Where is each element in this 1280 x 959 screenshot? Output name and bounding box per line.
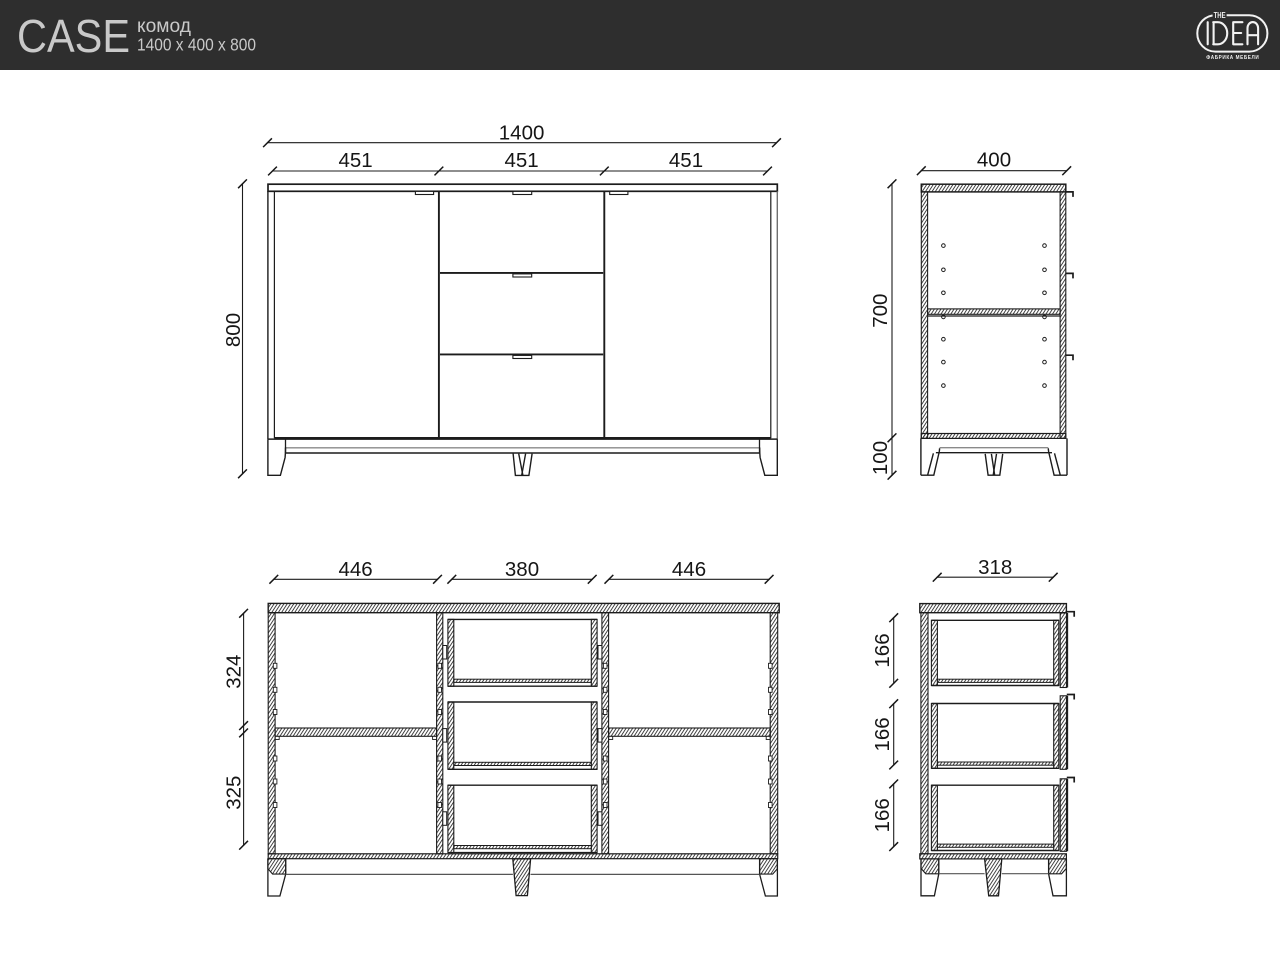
svg-text:324: 324 [223,655,246,689]
svg-text:100: 100 [869,441,892,475]
svg-text:451: 451 [504,149,538,172]
svg-text:700: 700 [869,294,892,328]
svg-text:325: 325 [223,776,246,810]
svg-text:CASE: CASE [17,10,130,62]
svg-text:446: 446 [338,558,372,581]
svg-text:451: 451 [338,149,372,172]
svg-text:166: 166 [871,798,894,832]
svg-text:ФАБРИКА МЕБЕЛИ: ФАБРИКА МЕБЕЛИ [1206,55,1259,61]
svg-text:446: 446 [672,558,706,581]
svg-text:451: 451 [669,149,703,172]
svg-text:1400 x 400 x 800: 1400 x 400 x 800 [137,35,256,55]
svg-text:800: 800 [222,313,245,347]
svg-text:318: 318 [978,556,1012,579]
svg-text:166: 166 [871,633,894,667]
svg-text:THE: THE [1214,10,1226,20]
svg-text:166: 166 [871,717,894,751]
svg-text:1400: 1400 [499,121,545,144]
svg-text:380: 380 [505,558,539,581]
svg-text:400: 400 [977,149,1011,172]
